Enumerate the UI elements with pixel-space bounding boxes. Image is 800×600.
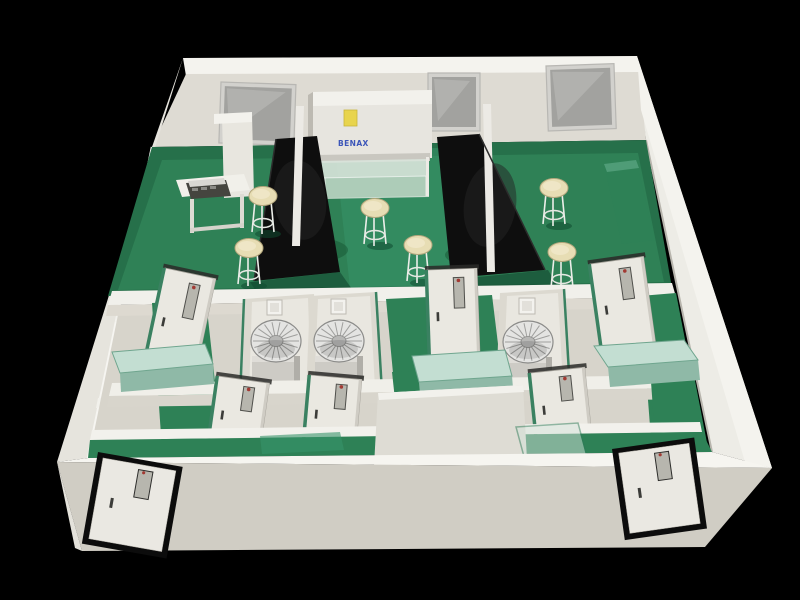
biosafety-cabinet: BENAX bbox=[308, 90, 432, 199]
window bbox=[546, 64, 616, 131]
window bbox=[428, 73, 480, 131]
cabinet-brand-logo: BENAX bbox=[338, 139, 369, 148]
bench-left bbox=[112, 344, 214, 392]
wall-switch-box bbox=[519, 298, 535, 314]
entry-door bbox=[612, 437, 707, 540]
entry-door bbox=[82, 452, 183, 559]
cabinet-sticker bbox=[344, 110, 357, 126]
interior-door bbox=[424, 264, 482, 357]
wall-switch-box bbox=[331, 299, 346, 314]
lab-3d-rendering: BENAX bbox=[0, 0, 800, 600]
wall-switch-box bbox=[267, 300, 282, 315]
bench-right bbox=[594, 340, 700, 387]
lab-floorplan-canvas: BENAX bbox=[0, 0, 800, 600]
